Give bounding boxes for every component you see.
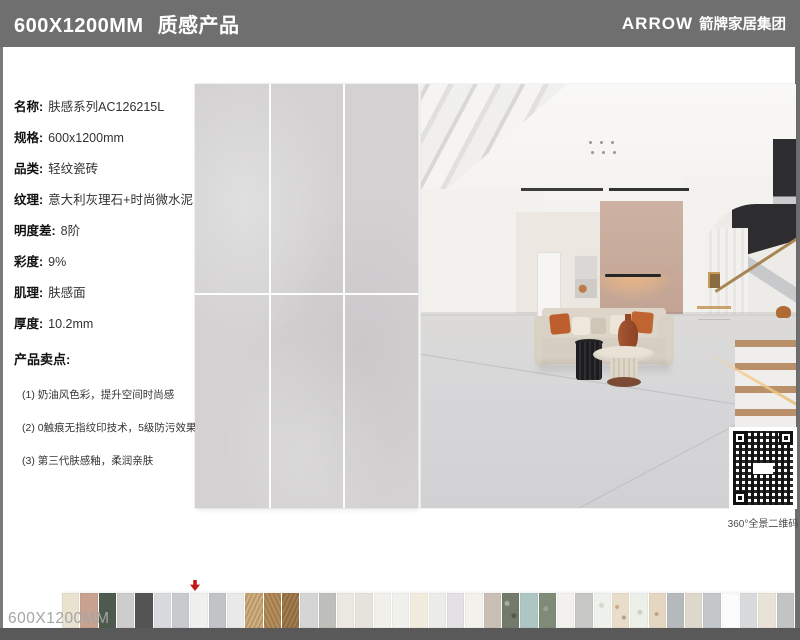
swatch-25[interactable] [520, 593, 537, 628]
swatch-13[interactable] [300, 593, 317, 628]
swatch-8[interactable] [209, 593, 226, 628]
swatch-24[interactable] [502, 593, 519, 628]
qr-center-chip [753, 463, 773, 474]
swatch-30[interactable] [612, 593, 629, 628]
spec-label: 明度差: [14, 224, 56, 238]
swatch-3[interactable] [117, 593, 134, 628]
spec-value: 意大利灰理石+时尚微水泥 [48, 193, 193, 207]
swatch-15[interactable] [337, 593, 354, 628]
page-title-series: 质感产品 [158, 15, 240, 37]
spec-row-5: 彩度:9% [14, 256, 199, 269]
ceiling-spotlight [589, 141, 592, 144]
side-table [576, 342, 602, 380]
ceiling-spotlight [611, 141, 614, 144]
tile-surface [195, 84, 418, 508]
spec-row-7: 厚度:10.2mm [14, 318, 199, 331]
spec-row-2: 品类:轻纹瓷砖 [14, 163, 199, 176]
swatch-12[interactable] [282, 593, 299, 628]
qr-finder-icon [733, 431, 747, 445]
spec-value: 9% [48, 255, 66, 269]
spec-row-3: 纹理:意大利灰理石+时尚微水泥 [14, 194, 199, 207]
qr-caption: 360°全景二维码 [713, 515, 800, 530]
spec-row-4: 明度差:8阶 [14, 225, 199, 238]
spec-label: 肌理: [14, 286, 43, 300]
wall-light-bar [605, 274, 661, 277]
swatch-32[interactable] [649, 593, 666, 628]
swatch-20[interactable] [429, 593, 446, 628]
swatch-21[interactable] [447, 593, 464, 628]
swatch-6[interactable] [172, 593, 189, 628]
swatch-19[interactable] [410, 593, 427, 628]
wall-light-glow [591, 275, 675, 303]
spec-panel: 名称:肤感系列AC126215L规格:600x1200mm品类:轻纹瓷砖纹理:意… [14, 101, 199, 467]
brand-logo: ARROW 箭牌家居集团 [622, 13, 786, 34]
tile-grout-line [343, 84, 345, 508]
swatch-35[interactable] [703, 593, 720, 628]
swatch-29[interactable] [594, 593, 611, 628]
footer-size-label: 600X1200MM [8, 610, 110, 628]
swatch-7[interactable] [190, 593, 207, 628]
swatch-26[interactable] [539, 593, 556, 628]
swatch-17[interactable] [374, 593, 391, 628]
ceiling-spotlight [591, 151, 594, 154]
spec-label: 厚度: [14, 317, 43, 331]
spec-label: 纹理: [14, 193, 43, 207]
product-sheet: 600X1200MM质感产品 ARROW 箭牌家居集团 名称:肤感系列AC126… [0, 0, 800, 640]
wall-niche [708, 272, 720, 288]
header-bar: 600X1200MM质感产品 ARROW 箭牌家居集团 [0, 0, 800, 47]
swatch-5[interactable] [154, 593, 171, 628]
spec-list: 名称:肤感系列AC126215L规格:600x1200mm品类:轻纹瓷砖纹理:意… [14, 101, 199, 331]
table-lamp [776, 306, 791, 318]
wall-artwork [574, 255, 598, 299]
spec-value: 轻纹瓷砖 [48, 162, 98, 176]
swatch-14[interactable] [319, 593, 336, 628]
selling-point-3: (3) 第三代肤感釉，柔润亲肤 [22, 455, 199, 467]
ceiling-spotlight [613, 151, 616, 154]
spec-label: 名称: [14, 100, 43, 114]
swatch-33[interactable] [667, 593, 684, 628]
swatch-9[interactable] [227, 593, 244, 628]
tile-grout-line [195, 293, 418, 295]
qr-finder-icon [779, 431, 793, 445]
spec-label: 彩度: [14, 255, 43, 269]
spec-label: 规格: [14, 131, 43, 145]
brand-logo-en: ARROW [622, 14, 693, 34]
swatch-38[interactable] [758, 593, 775, 628]
swatch-39[interactable] [777, 593, 794, 628]
tile-grout-line [269, 84, 271, 508]
swatch-11[interactable] [264, 593, 281, 628]
sofa-shadow [538, 362, 670, 372]
swatch-37[interactable] [740, 593, 757, 628]
product-swatch-strip [62, 593, 794, 628]
swatch-23[interactable] [484, 593, 501, 628]
swatch-36[interactable] [722, 593, 739, 628]
arch-opening [704, 204, 796, 316]
cushion [591, 318, 606, 334]
selling-point-1: (1) 奶油风色彩，提升空间时尚感 [22, 389, 199, 401]
swatch-18[interactable] [392, 593, 409, 628]
selling-points-title: 产品卖点: [14, 349, 199, 368]
swatch-10[interactable] [245, 593, 262, 628]
console-bench [697, 306, 731, 309]
selling-points-list: (1) 奶油风色彩，提升空间时尚感(2) 0触痕无指纹印技术，5级防污效果(3)… [14, 389, 199, 467]
page-edge-left [0, 47, 3, 628]
cushion [572, 317, 590, 335]
spec-label: 品类: [14, 162, 43, 176]
spec-value: 肤感面 [48, 286, 86, 300]
spec-row-0: 名称:肤感系列AC126215L [14, 101, 199, 114]
ceiling-spotlight [602, 151, 605, 154]
selling-point-2: (2) 0触痕无指纹印技术，5级防污效果 [22, 422, 199, 434]
track-light [521, 188, 603, 191]
swatch-4[interactable] [135, 593, 152, 628]
swatch-16[interactable] [355, 593, 372, 628]
spec-value: 肤感系列AC126215L [48, 100, 164, 114]
spec-row-6: 肌理:肤感面 [14, 287, 199, 300]
ceiling-spotlight [600, 141, 603, 144]
spec-value: 8阶 [61, 224, 80, 238]
swatch-34[interactable] [685, 593, 702, 628]
floor-bowl [607, 377, 641, 387]
tile-swatch-photo [195, 84, 418, 508]
cushion [549, 313, 571, 335]
track-light [609, 188, 689, 191]
spec-row-1: 规格:600x1200mm [14, 132, 199, 145]
spec-value: 600x1200mm [48, 131, 124, 145]
page-title-size: 600X1200MM [14, 15, 144, 37]
highlight-arrow-icon [190, 580, 200, 591]
footer-bar [0, 628, 800, 640]
qr-finder-icon [733, 491, 747, 505]
brand-logo-cn: 箭牌家居集团 [699, 13, 786, 34]
swatch-31[interactable] [630, 593, 647, 628]
qr-pattern [733, 431, 793, 505]
swatch-22[interactable] [465, 593, 482, 628]
page-title: 600X1200MM质感产品 [14, 9, 240, 38]
door [537, 252, 561, 316]
swatch-27[interactable] [557, 593, 574, 628]
sofa [534, 308, 674, 378]
qr-code [729, 427, 797, 509]
swatch-28[interactable] [575, 593, 592, 628]
spec-value: 10.2mm [48, 317, 93, 331]
